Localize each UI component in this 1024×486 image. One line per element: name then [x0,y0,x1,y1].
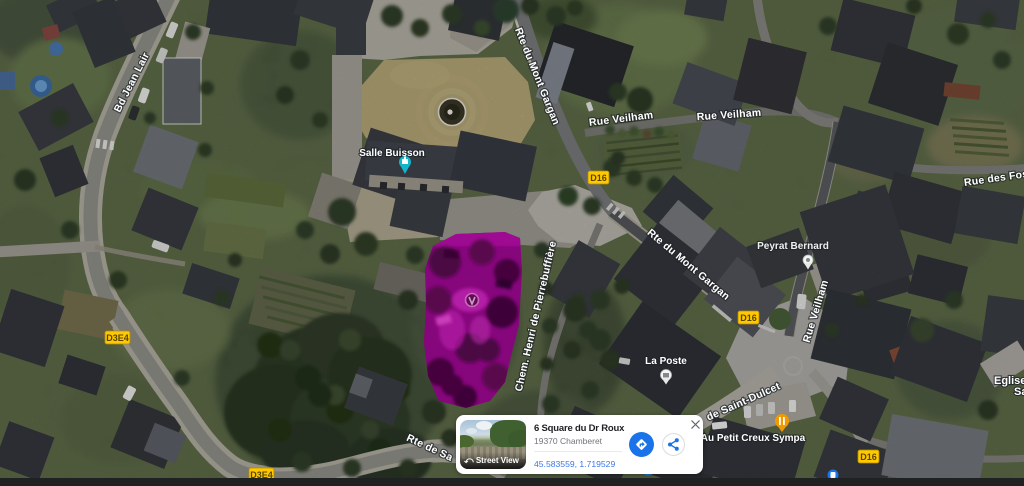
svg-text:Salle Buisson: Salle Buisson [359,148,425,159]
svg-text:D16: D16 [860,452,877,462]
svg-text:Au Petit Creux Sympa: Au Petit Creux Sympa [701,433,806,444]
svg-text:D3E4: D3E4 [106,333,129,343]
svg-text:Sa: Sa [1014,386,1024,398]
svg-text:La Poste: La Poste [645,356,687,367]
svg-text:D16: D16 [590,173,607,183]
svg-text:D16: D16 [740,313,757,323]
svg-text:Peyrat Bernard: Peyrat Bernard [757,241,829,252]
